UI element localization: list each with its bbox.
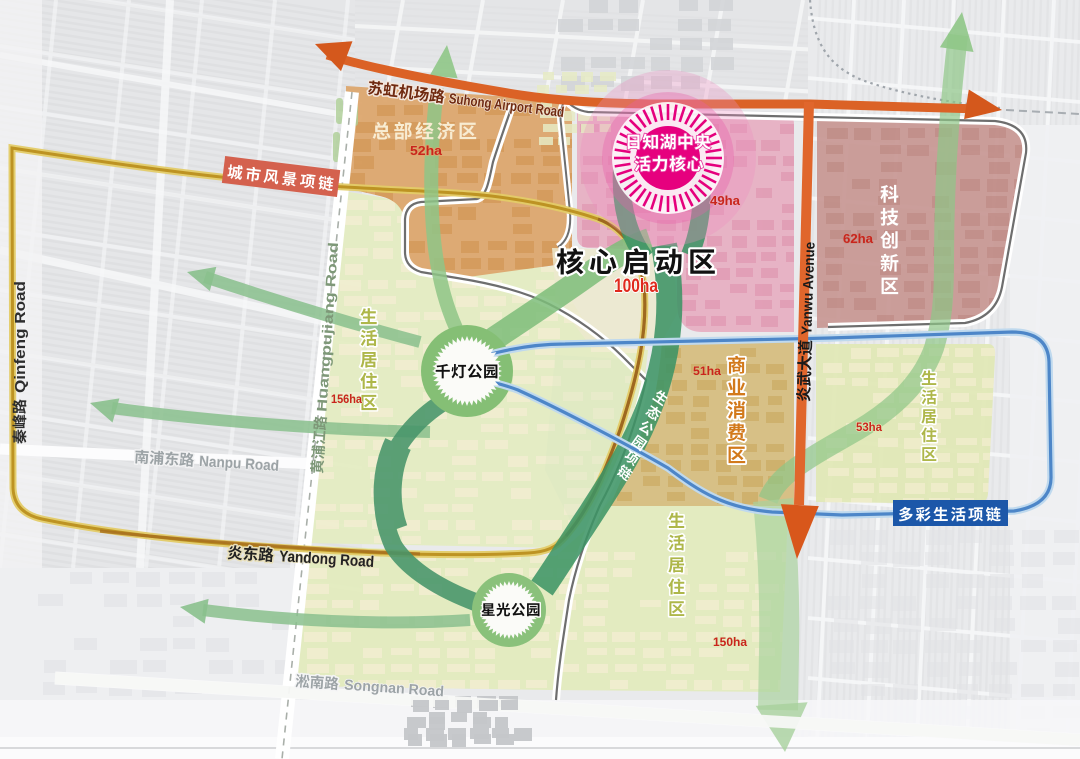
svg-text:62ha: 62ha bbox=[843, 232, 874, 246]
svg-text:156ha: 156ha bbox=[331, 392, 362, 406]
svg-text:53ha: 53ha bbox=[856, 420, 882, 434]
svg-text:49ha: 49ha bbox=[710, 194, 741, 208]
svg-text:51ha: 51ha bbox=[693, 364, 721, 378]
svg-text:100ha: 100ha bbox=[614, 276, 658, 297]
svg-text:150ha: 150ha bbox=[713, 635, 747, 649]
svg-text:52ha: 52ha bbox=[410, 144, 443, 158]
svg-text:Qinfeng Road: Qinfeng Road bbox=[13, 281, 29, 393]
svg-text:Yanwu Avenue: Yanwu Avenue bbox=[799, 242, 818, 336]
